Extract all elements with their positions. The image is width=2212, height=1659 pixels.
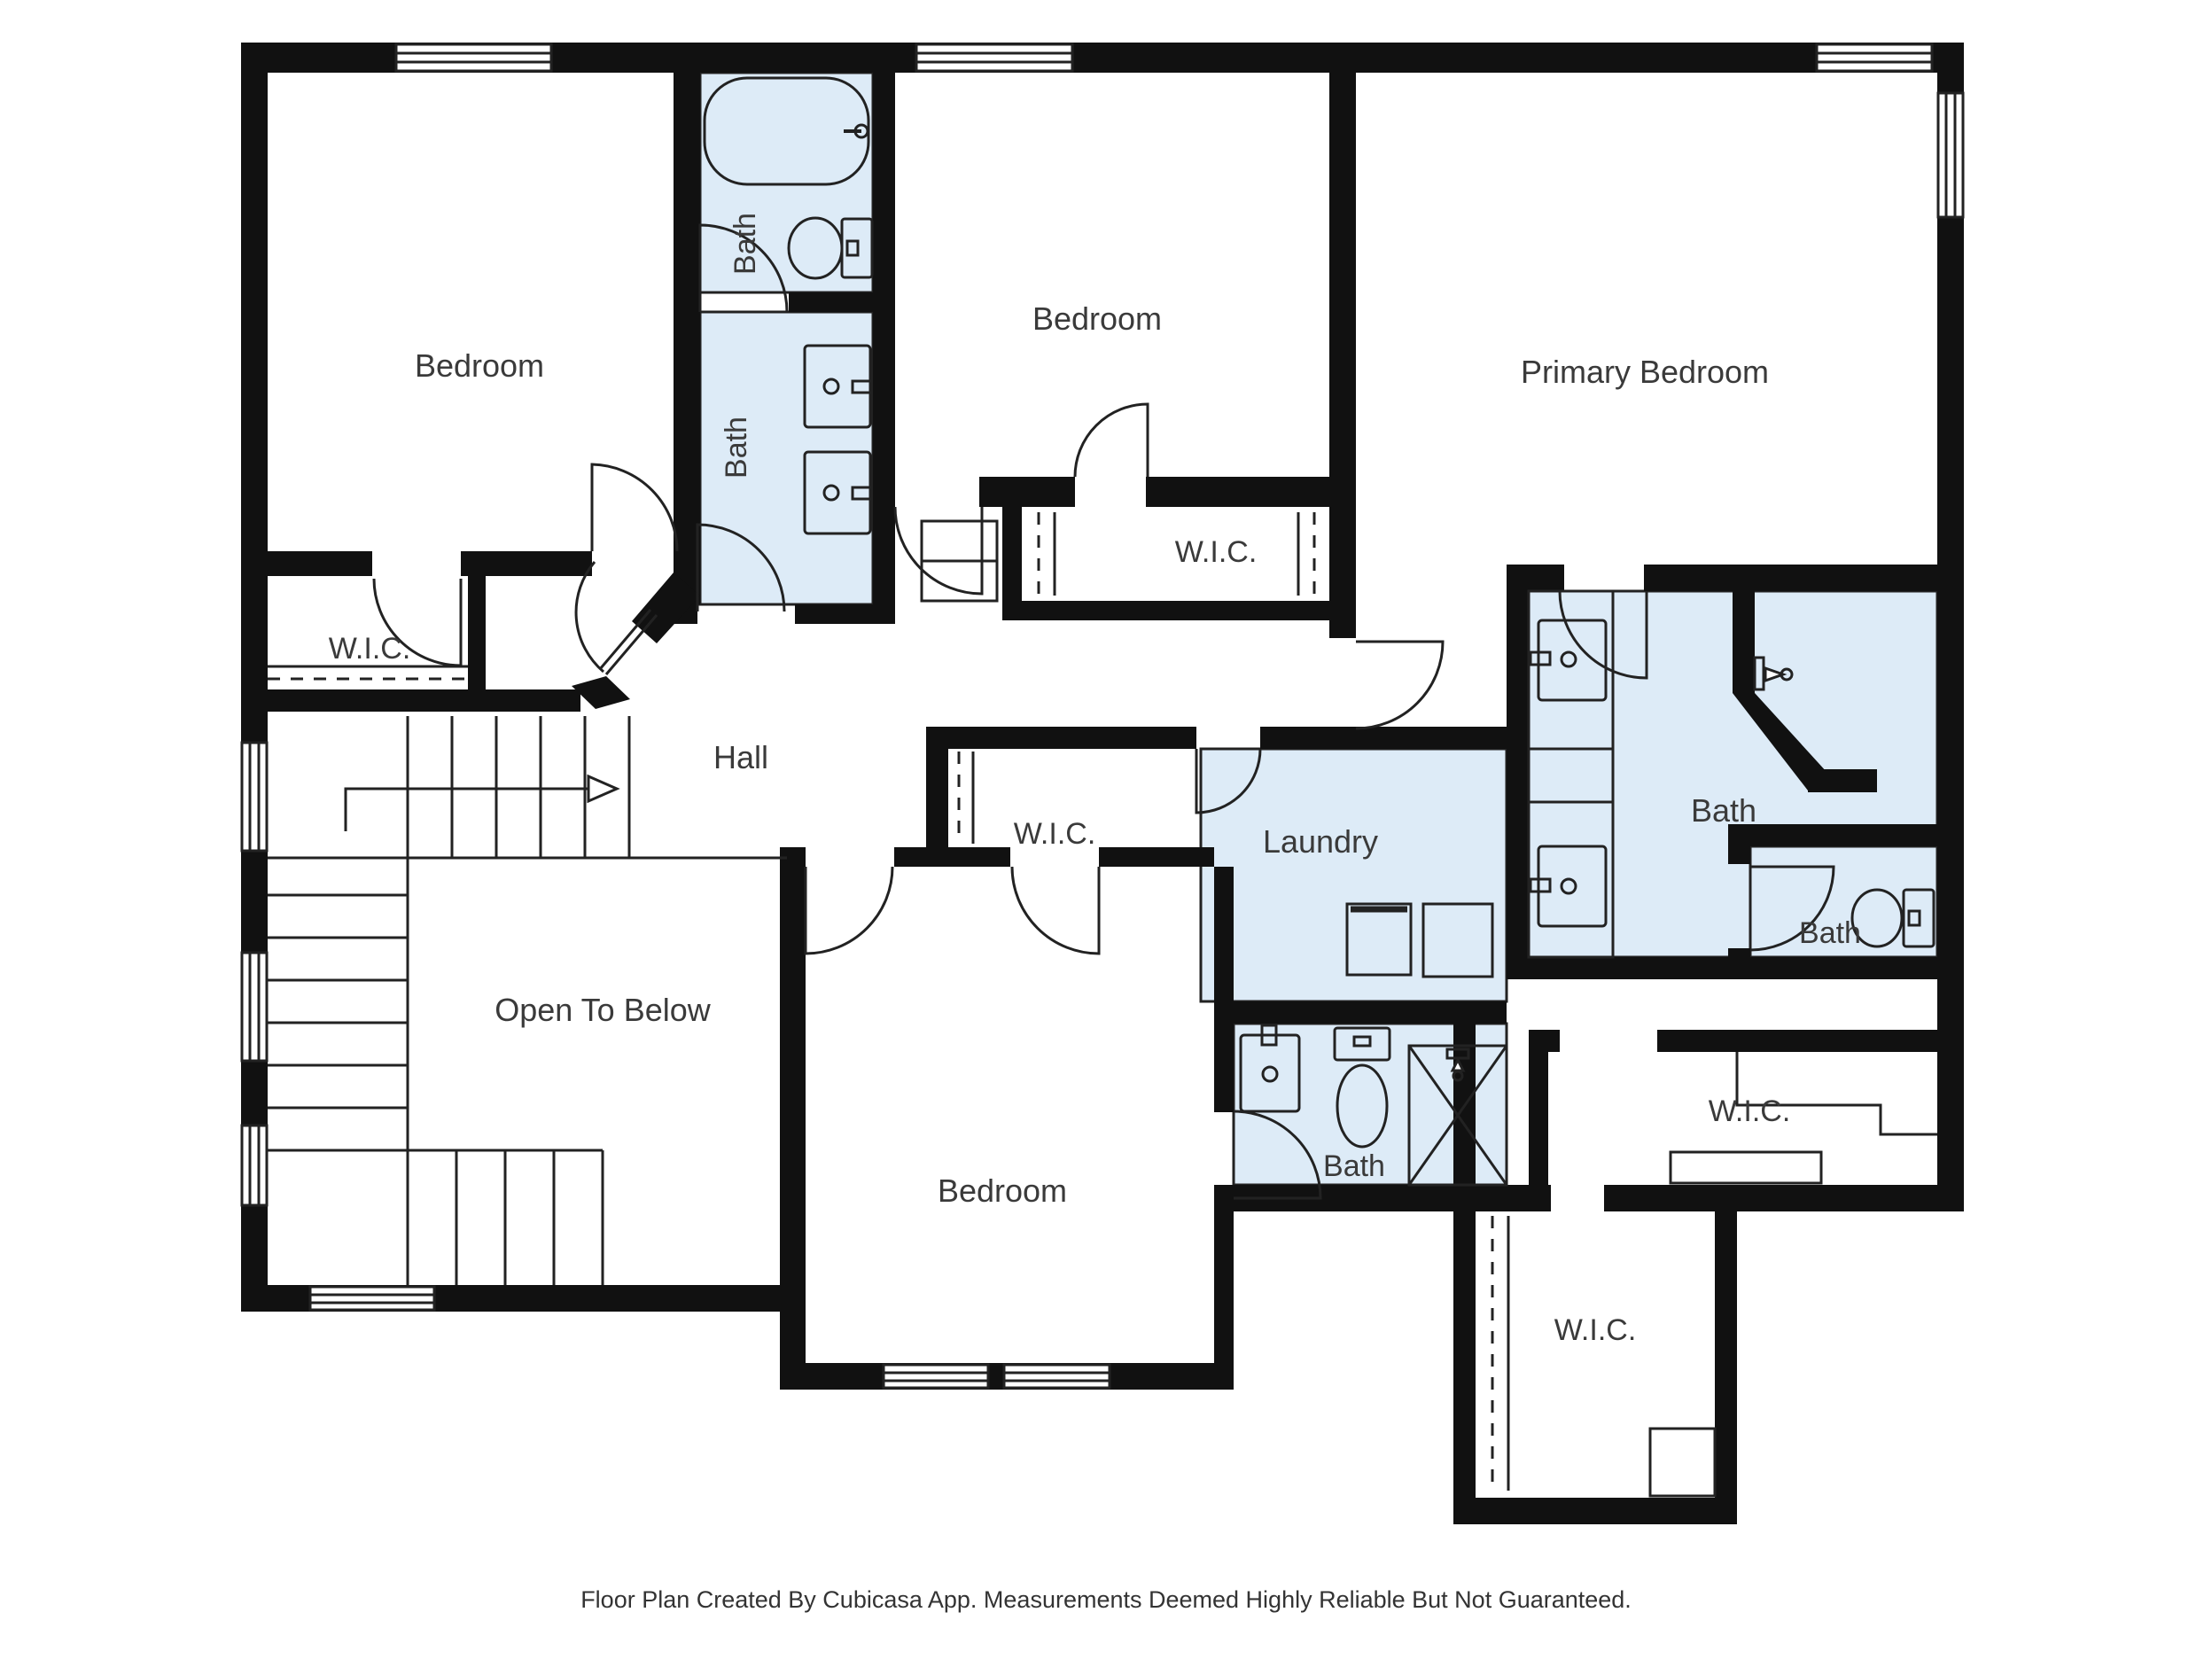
label-hall: Hall [713, 739, 768, 775]
door-primary-suite-entry [1356, 642, 1443, 728]
wall-right-wic-top-a [1529, 1030, 1560, 1052]
wall-laundry-right [1507, 565, 1529, 979]
label-wic-top-left: W.I.C. [329, 632, 411, 666]
label-bath-primary: Bath [1691, 792, 1756, 829]
label-laundry: Laundry [1263, 823, 1378, 860]
footer-disclaimer: Floor Plan Created By Cubicasa App. Meas… [580, 1586, 1632, 1613]
wall-bottom-band-b [1604, 1185, 1964, 1211]
wall-extension-bottom [1453, 1498, 1737, 1524]
window-bottom-left [310, 1287, 434, 1310]
window-right-wall [1938, 93, 1963, 217]
label-bath-ensuite: Bath [1323, 1149, 1385, 1183]
window-top-middle [916, 44, 1072, 71]
wall-primary-bath-top-b [1644, 565, 1964, 591]
wall-laundry-top [1356, 727, 1507, 749]
wall-small-bath-left-a [1728, 824, 1750, 864]
floor-plan-svg: Bedroom Bath Bath Bedroom Primary Bedroo… [0, 0, 2212, 1659]
door-tl-bedroom [592, 464, 677, 551]
upper-bath-floor [700, 73, 873, 292]
wall-bedroom-bottom-right-a [1214, 867, 1234, 1112]
window-left-wall-3 [242, 1125, 267, 1205]
wall-laundry-bottom [1214, 1001, 1507, 1024]
window-top-right [1817, 44, 1932, 71]
wall-right-wic-left [1529, 1052, 1548, 1185]
wall-small-bath-left-b [1728, 948, 1750, 979]
wall-landing-bottom [241, 689, 580, 712]
wall-exterior-left [241, 43, 268, 1312]
left-wic-rod-shelf [268, 666, 468, 679]
wall-shower-stub-v [1733, 591, 1755, 693]
wall-bath-col-left [674, 43, 700, 604]
wall-left-wic-right [468, 551, 486, 712]
door-bottom-wic [1012, 867, 1099, 954]
wall-small-bath-top [1728, 824, 1964, 846]
wall-bedroom-top-b [894, 847, 1010, 867]
wall-bath-divider-a [674, 292, 700, 312]
wall-primary-left-a [1329, 43, 1356, 638]
door-bottom-bedroom [806, 867, 892, 954]
window-top-left [396, 44, 551, 71]
wall-bottom-wic-left [926, 727, 948, 849]
label-wic-right: W.I.C. [1709, 1094, 1791, 1128]
label-bedroom-middle: Bedroom [1032, 300, 1162, 337]
wall-bedroom-top-c [1099, 847, 1214, 867]
label-bedroom-bottom: Bedroom [938, 1172, 1067, 1209]
label-bath-small: Bath [1799, 916, 1861, 950]
wall-tl-bedroom-bottom-a [241, 551, 372, 576]
label-wic-extension: W.I.C. [1554, 1313, 1637, 1347]
label-bedroom-top-left: Bedroom [415, 347, 544, 384]
label-wic-middle: W.I.C. [1175, 535, 1258, 569]
wall-hall-bottom-b [1260, 727, 1356, 749]
wall-mid-bedroom-bottom-b [1146, 477, 1329, 507]
window-left-wall-2 [242, 953, 267, 1061]
window-left-wall-1 [242, 743, 267, 851]
hall-niche-shelf [922, 521, 997, 601]
label-open-to-below: Open To Below [495, 992, 711, 1028]
label-wic-bottom: W.I.C. [1014, 817, 1096, 851]
extension-wic-rod-shelf [1492, 1216, 1715, 1496]
wall-mid-wic-left [1002, 477, 1022, 619]
label-bath-upper: Bath [728, 213, 762, 275]
wall-mid-bedroom-bottom-a [979, 477, 1075, 507]
wall-right-wic-top-b [1657, 1030, 1964, 1052]
label-primary-bedroom: Primary Bedroom [1521, 354, 1769, 390]
wall-bath-col-right [873, 43, 895, 618]
door-mid-wic [1075, 404, 1148, 477]
wall-extension-right [1715, 1211, 1737, 1524]
floor-plan-page: Bedroom Bath Bath Bedroom Primary Bedroo… [0, 0, 2212, 1659]
wall-bedroom-bottom-left [780, 860, 806, 1390]
label-bath-lower: Bath [720, 417, 753, 479]
wall-primary-bath-top-a [1529, 565, 1564, 591]
bottom-wic-rod-shelf [959, 752, 973, 844]
stair-direction-arrow-icon [346, 776, 617, 831]
wall-shower-stub-h [1808, 769, 1877, 792]
wall-bath-divider-b [789, 292, 895, 312]
wall-mid-wic-bottom [1002, 601, 1356, 620]
wall-hall-bottom-a [926, 727, 1196, 749]
door-hall-diagonal [576, 562, 657, 674]
wall-bath-bottom-b [795, 604, 895, 624]
wall-extension-left [1453, 1024, 1476, 1524]
wall-bedroom-bottom-right-b [1214, 1201, 1234, 1363]
